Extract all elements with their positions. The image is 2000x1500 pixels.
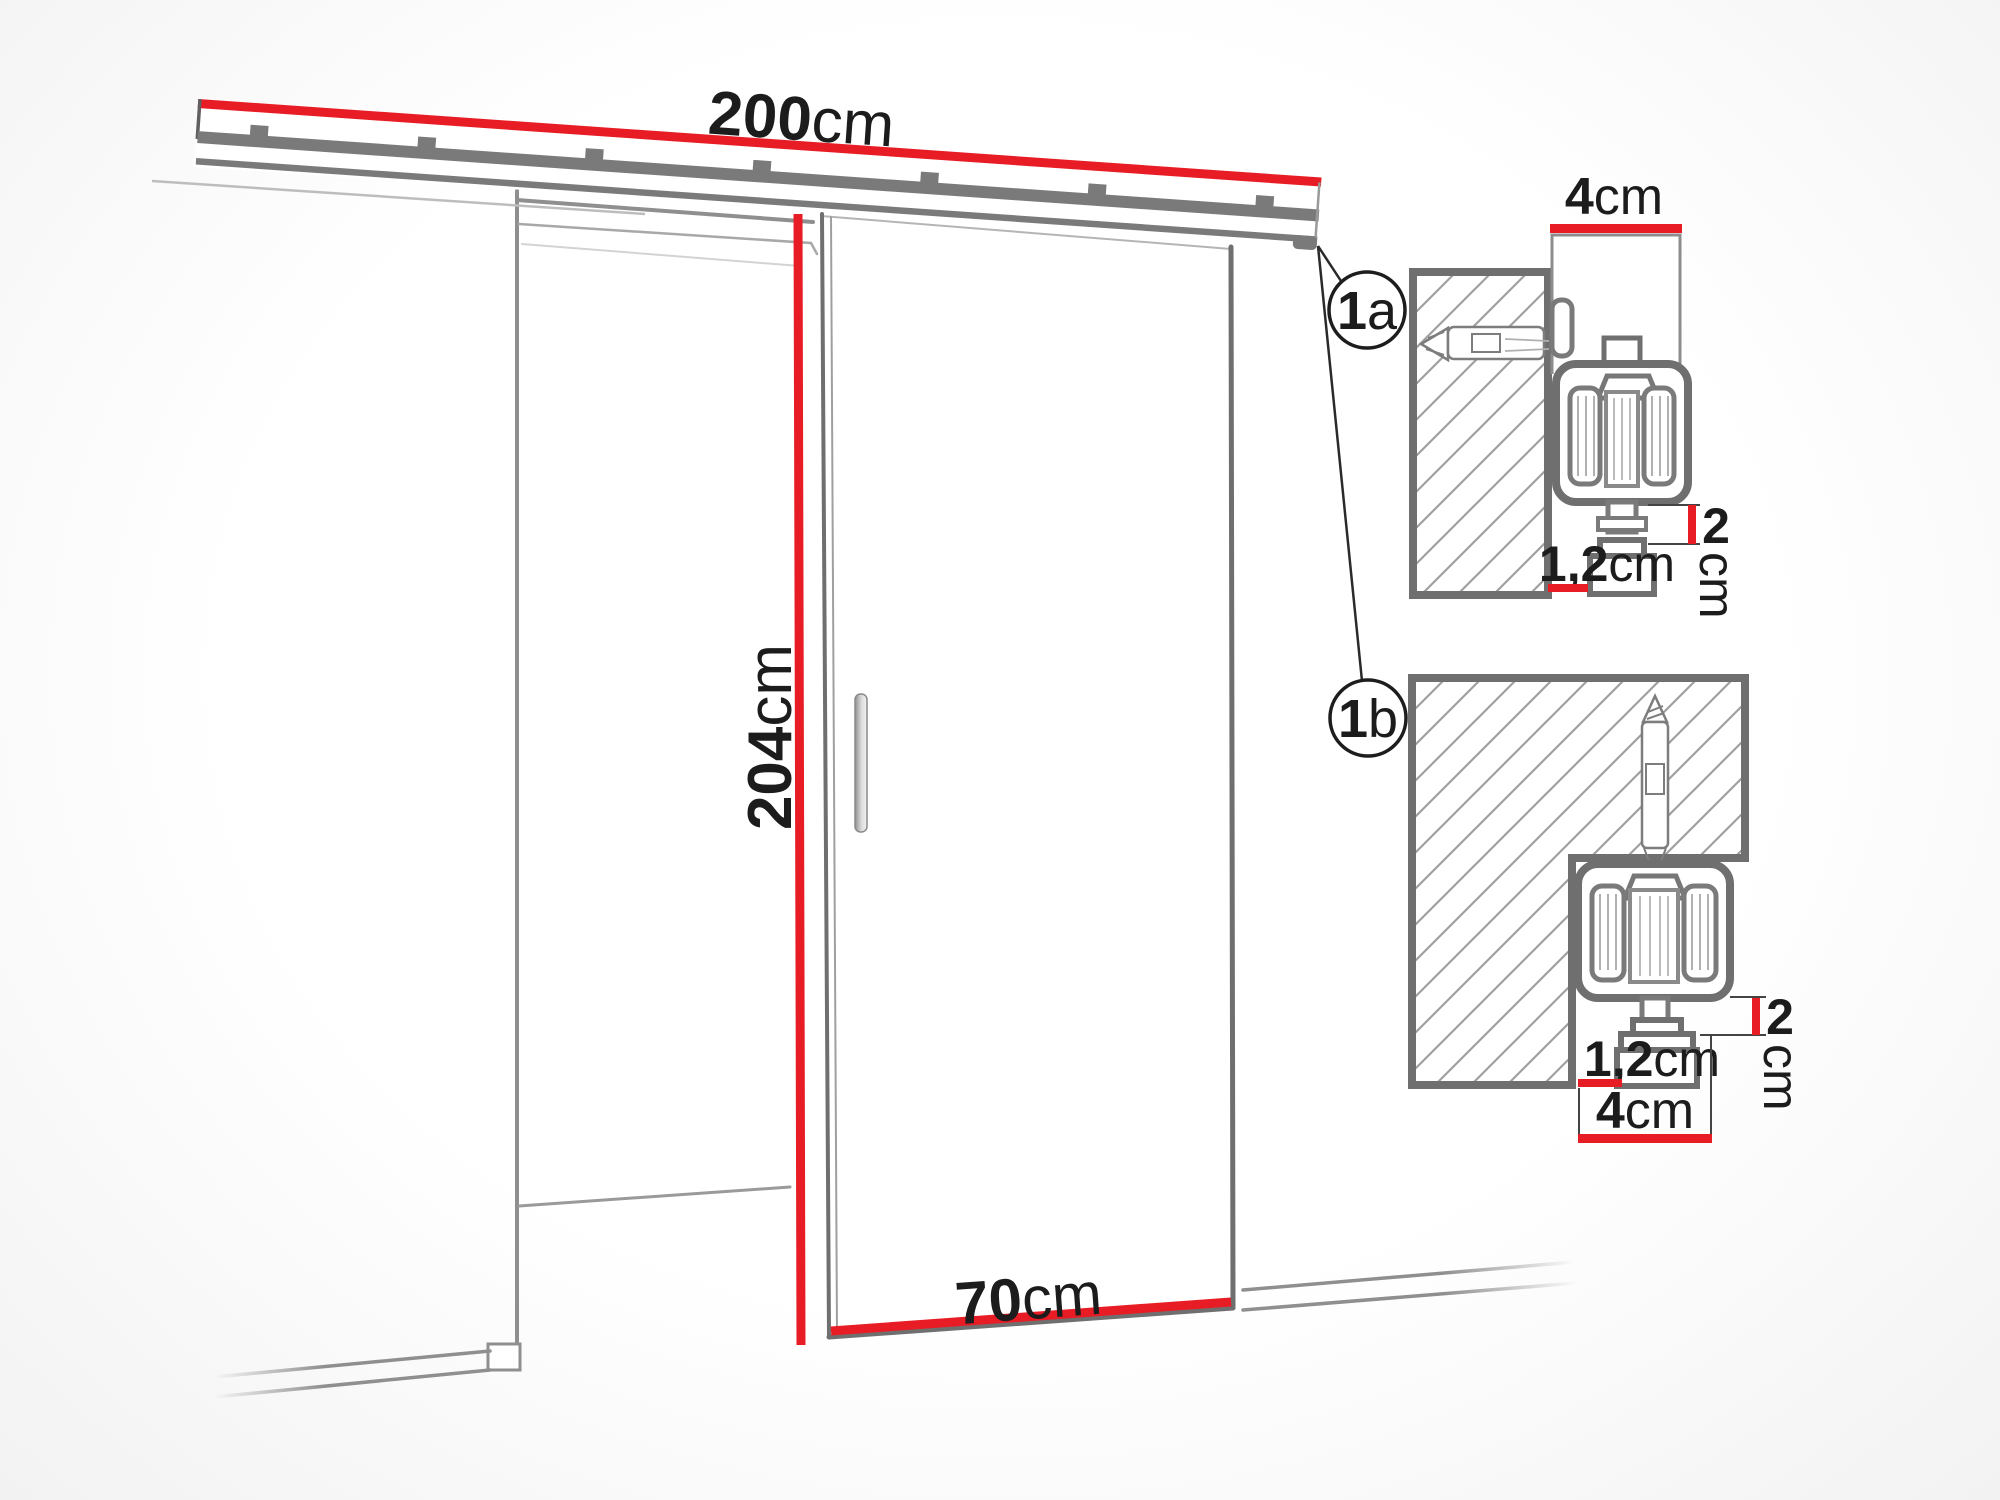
door-handle: [855, 694, 867, 832]
doorway-lintel-shadow: [522, 244, 800, 266]
sliding-door-diagram: 200cm 204cm 70cm 1a 1b: [0, 0, 2000, 1500]
doorway-floor-line: [519, 1187, 790, 1206]
rail-end-hook: [1293, 235, 1318, 251]
rail-depth-line-1b: [1578, 1134, 1712, 1143]
callout-1a: 1a: [1329, 272, 1405, 348]
callout-1a-label: 1a: [1337, 281, 1398, 341]
door-panel: [821, 214, 1233, 1338]
callout-1b-label: 1b: [1338, 689, 1398, 749]
door-height-label: 204cm: [736, 644, 805, 830]
door-right-edge: [1231, 247, 1233, 1307]
rail-depth-label-1a: 4cm: [1565, 168, 1663, 226]
door-width-label: 70cm: [953, 1260, 1104, 1338]
clearance-unit-1a: cm: [1689, 552, 1745, 619]
clearance-value-1b: 2: [1766, 989, 1794, 1045]
wall-section-hatched-1a: [1413, 272, 1548, 595]
screw-icon-horizontal: [1421, 327, 1549, 360]
gap-label-1b: 1,2cm: [1584, 1031, 1720, 1087]
detail-view-1a: 4cm 2 cm 1,2cm: [1413, 168, 1745, 619]
rail-profile-hook-1a: [1552, 300, 1572, 356]
doorway-lintel-corner-tick: [811, 243, 817, 254]
rail-width-label: 200cm: [706, 79, 896, 161]
screw-icon-vertical: [1642, 696, 1668, 872]
diagram-page: 200cm 204cm 70cm 1a 1b: [0, 0, 2000, 1500]
detail-view-1b: 2 cm 1,2cm 4cm: [1412, 678, 1809, 1143]
clearance-unit-1b: cm: [1753, 1044, 1809, 1111]
gap-line-1a: [1548, 584, 1588, 592]
door-slab: [821, 214, 1233, 1338]
jamb-foot-block: [488, 1344, 520, 1370]
rail-depth-label-1b: 4cm: [1596, 1082, 1694, 1140]
doorway-lintel-inner: [519, 224, 811, 243]
gap-label-1a: 1,2cm: [1539, 536, 1675, 592]
clearance-line-1b: [1752, 998, 1760, 1035]
callout-1b: 1b: [1330, 680, 1406, 756]
clearance-line-1a: [1688, 505, 1696, 544]
clearance-value-1a: 2: [1702, 498, 1730, 554]
